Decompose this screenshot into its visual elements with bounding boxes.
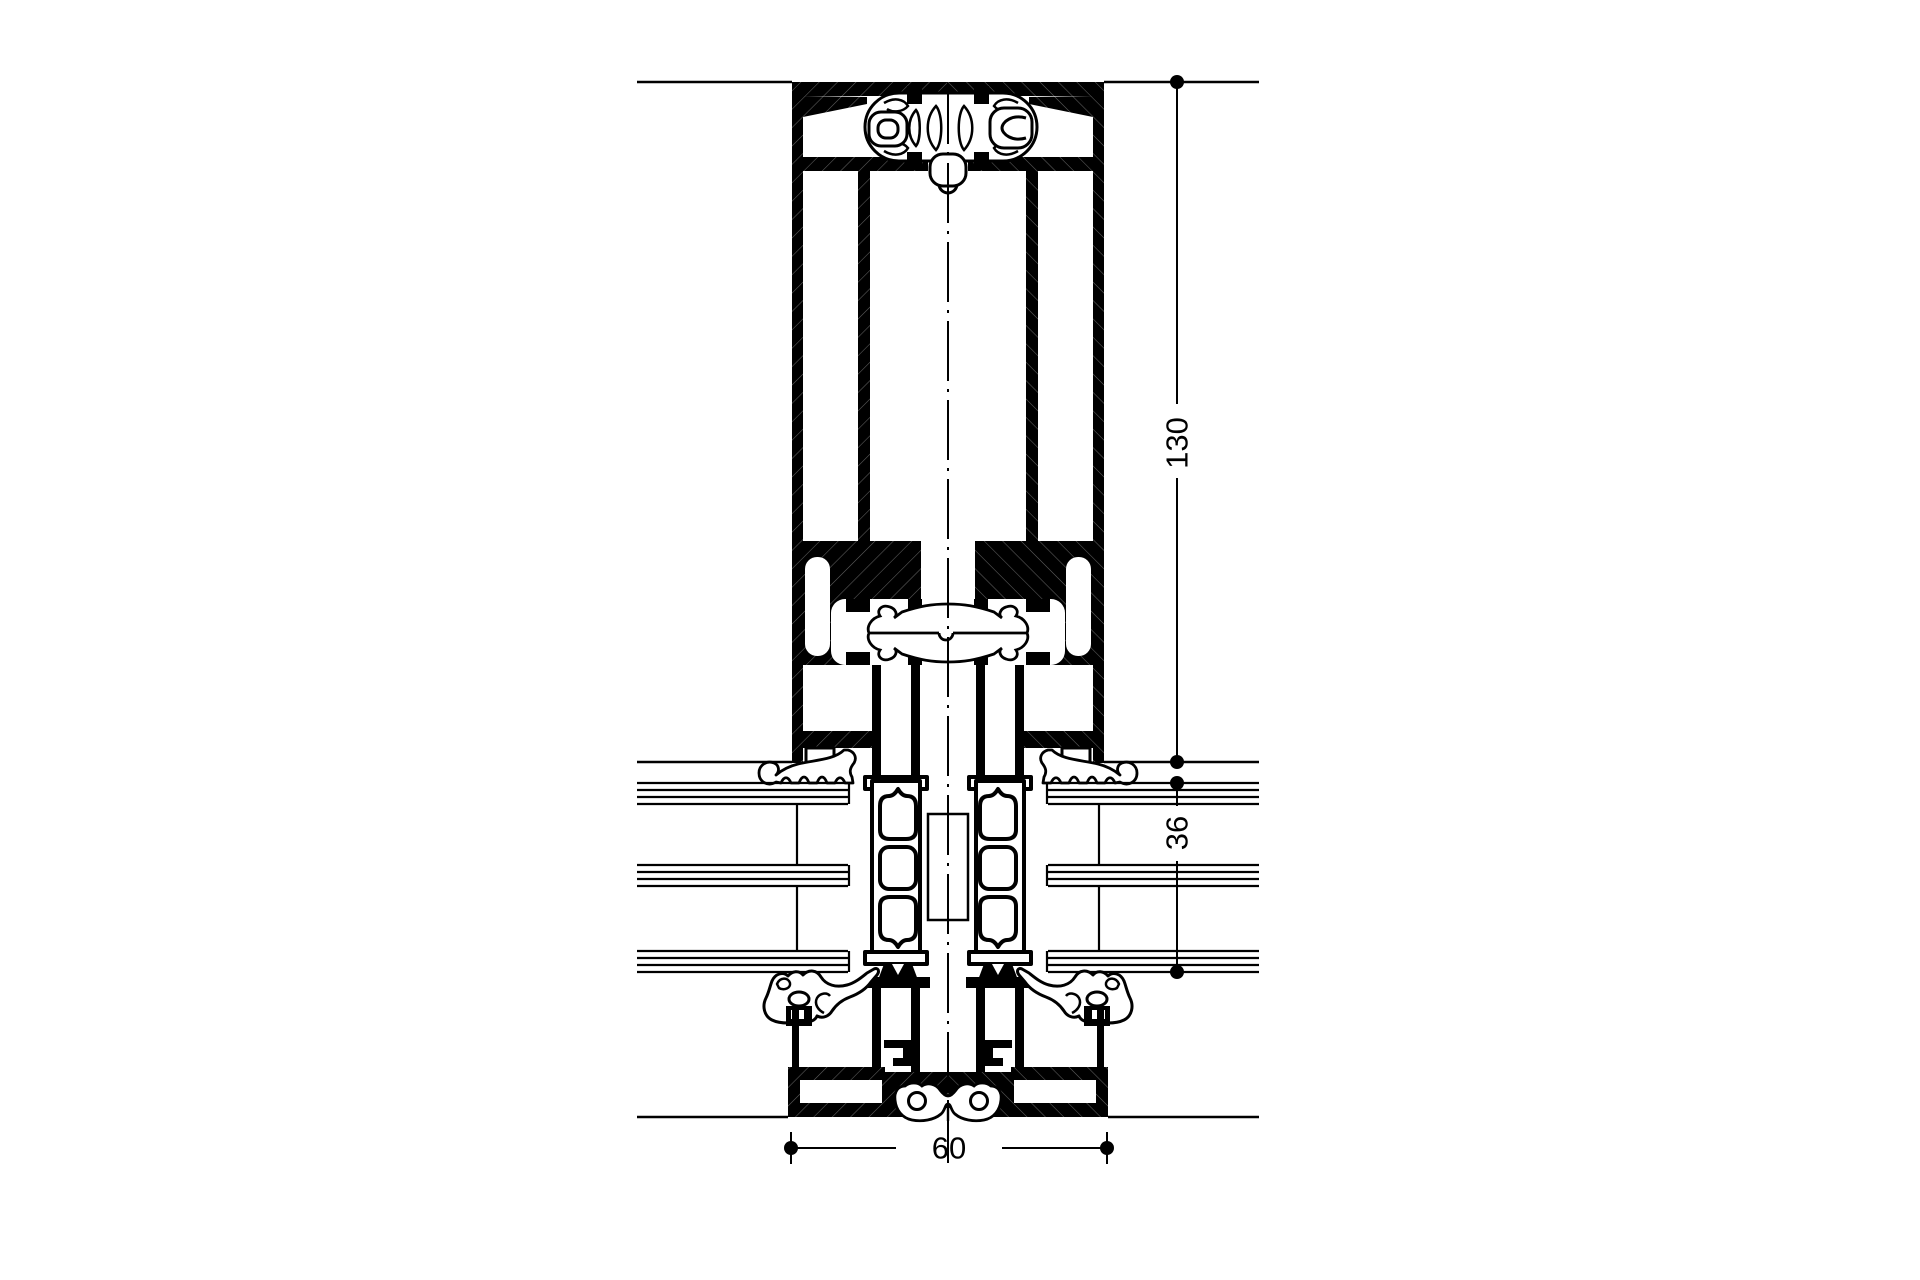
- dimension-frame-depth: 130: [1160, 75, 1195, 769]
- spacer-bar: [865, 777, 930, 988]
- dimension-label-130: 130: [1160, 417, 1195, 469]
- top-seal-gasket: [865, 86, 1037, 193]
- glass-panes: [637, 783, 849, 972]
- dimension-label-36: 36: [1160, 816, 1195, 850]
- interlock-key: [884, 1040, 911, 1066]
- glazing-clamp: [764, 968, 878, 1026]
- dimension-label-60: 60: [932, 1131, 966, 1166]
- dimension-profile-width: 60: [784, 1131, 1114, 1166]
- reference-lines: [637, 82, 792, 1117]
- drawing-canvas: 130 36 60: [0, 0, 1920, 1280]
- interlock-channel: [872, 986, 920, 1074]
- clamp-hole: [789, 992, 809, 1006]
- dimension-infill-thickness: 36: [1160, 776, 1195, 979]
- technical-section-drawing: 130 36 60: [0, 0, 1920, 1280]
